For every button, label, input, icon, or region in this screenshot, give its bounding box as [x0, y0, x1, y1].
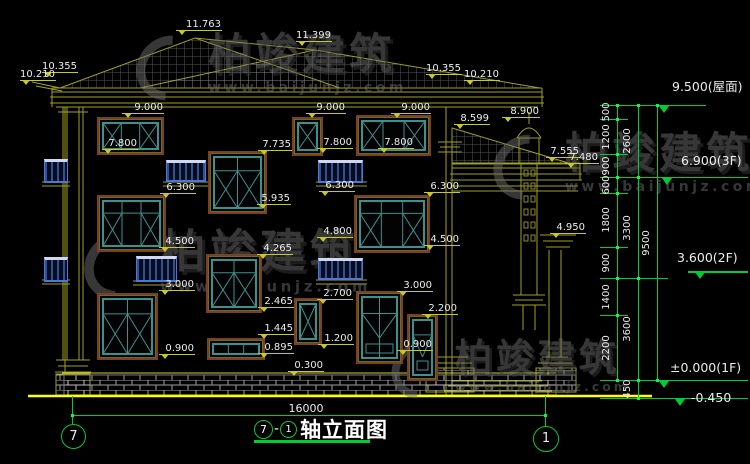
level-triangle-icon — [659, 381, 669, 388]
elevation-value: 4.950 — [556, 222, 585, 233]
elevation-value: 1.445 — [264, 323, 293, 334]
level-label: ±0.000(1F) — [670, 360, 741, 375]
balcony-railing — [44, 257, 68, 282]
balcony-railing — [44, 159, 68, 183]
elevation-value: 6.300 — [166, 182, 195, 193]
elevation-value: 3.000 — [403, 280, 432, 291]
dim-chain-value: 1800 — [601, 198, 613, 242]
elevation-value: 8.599 — [460, 113, 489, 124]
elevation-value: 7.800 — [108, 138, 137, 149]
level-label: -0.450 — [691, 390, 731, 405]
elevation-marker: 10.210 — [20, 68, 56, 81]
dim-tick — [616, 118, 619, 121]
level-triangle-icon — [675, 399, 685, 406]
elevation-value: 10.210 — [20, 69, 55, 80]
elevation-triangle-icon — [466, 80, 474, 85]
balcony-railing — [318, 258, 363, 280]
dim-tick — [637, 397, 640, 400]
elevation-marker: 0.895 — [258, 341, 294, 354]
elevation-marker: 4.800 — [317, 225, 353, 238]
elevation-triangle-icon — [548, 157, 556, 162]
dim-tick — [637, 104, 640, 107]
elevation-triangle-icon — [428, 74, 436, 79]
elevation-triangle-icon — [380, 148, 388, 153]
elevation-value: 7.480 — [569, 152, 598, 163]
elevation-triangle-icon — [260, 307, 268, 312]
elevation-marker: 4.950 — [550, 221, 586, 234]
balcony-railing — [166, 160, 206, 182]
dim-chain-line — [617, 105, 618, 380]
dim-tick — [71, 414, 74, 417]
dim-tick — [616, 246, 619, 249]
dim-tick — [616, 379, 619, 382]
elevation-marker: 7.800 — [378, 136, 414, 149]
dim-chain-line — [638, 105, 639, 398]
axis-line-1 — [545, 396, 546, 427]
elevation-value: 0.900 — [165, 343, 194, 354]
elevation-marker: 10.355 — [426, 62, 462, 75]
axis-bubble-7: 7 — [61, 424, 86, 449]
elevation-value: 5.935 — [261, 193, 290, 204]
elevation-value: 4.800 — [323, 226, 352, 237]
elevation-marker: 5.935 — [257, 192, 291, 205]
elevation-triangle-icon — [178, 30, 186, 35]
dim-chain-value: 9500 — [641, 221, 653, 265]
elevation-triangle-icon — [161, 247, 169, 252]
elevation-marker: 4.500 — [159, 235, 195, 248]
elevation-triangle-icon — [290, 371, 298, 376]
elevation-marker: 2.700 — [317, 287, 353, 300]
elevation-marker: 9.000 — [391, 101, 431, 114]
title-separator: - — [274, 421, 279, 437]
dim-tick — [616, 192, 619, 195]
elevation-marker: 8.599 — [454, 112, 490, 125]
elevation-marker: 7.480 — [565, 151, 599, 164]
elevation-triangle-icon — [320, 344, 328, 349]
elevation-value: 8.900 — [510, 106, 539, 117]
elevation-triangle-icon — [399, 350, 407, 355]
axis-bubble-1: 1 — [533, 426, 559, 452]
elevation-marker: 4.265 — [257, 242, 293, 255]
elevation-triangle-icon — [567, 163, 575, 168]
elevation-value: 11.399 — [296, 30, 331, 41]
elevation-triangle-icon — [399, 291, 407, 296]
elevation-triangle-icon — [426, 245, 434, 250]
elevation-triangle-icon — [260, 334, 268, 339]
watermark: 柏竣建筑www.baijunjz.com — [138, 34, 407, 102]
elevation-value: 0.895 — [264, 342, 293, 353]
dim-chain-value: 3600 — [622, 307, 634, 351]
window — [206, 254, 262, 313]
elevation-value: 10.210 — [464, 69, 499, 80]
watermark-url: www.baijunjz.com — [455, 380, 630, 394]
elevation-value: 0.300 — [294, 360, 323, 371]
elevation-value: 9.000 — [401, 102, 430, 113]
elevation-value: 2.200 — [428, 303, 457, 314]
elevation-triangle-icon — [161, 354, 169, 359]
elevation-marker: 0.900 — [397, 338, 433, 351]
elevation-marker: 0.900 — [159, 342, 195, 355]
elevation-triangle-icon — [393, 113, 401, 118]
dim-tick — [637, 277, 640, 280]
elevation-marker: 7.800 — [317, 136, 353, 149]
elevation-drawing-canvas: 16000 7 - 1 轴立面图 7 1 柏竣建筑www.baijunjz.co… — [0, 0, 750, 464]
dim-chain-value: 2200 — [601, 326, 613, 370]
dim-tick — [616, 314, 619, 317]
window — [97, 195, 166, 252]
elevation-triangle-icon — [504, 117, 512, 122]
elevation-value: 4.265 — [263, 243, 292, 254]
dim-chain-value: 450 — [622, 367, 634, 411]
elevation-value: 2.465 — [264, 296, 293, 307]
elevation-value: 9.000 — [134, 102, 163, 113]
elevation-triangle-icon — [162, 193, 170, 198]
dim-tick — [544, 414, 547, 417]
elevation-value: 10.355 — [426, 63, 461, 74]
dim-chain-line — [657, 105, 658, 380]
elevation-value: 7.735 — [262, 139, 291, 150]
elevation-triangle-icon — [104, 149, 112, 154]
dim-chain-value: 1400 — [601, 275, 613, 319]
elevation-marker: 1.200 — [318, 332, 354, 345]
elevation-triangle-icon — [259, 204, 267, 209]
elevation-value: 1.200 — [324, 333, 353, 344]
elevation-value: 6.300 — [430, 181, 459, 192]
title-underline — [254, 440, 370, 443]
elevation-triangle-icon — [308, 113, 316, 118]
window — [354, 195, 430, 253]
elevation-triangle-icon — [298, 41, 306, 46]
elevation-marker: 9.000 — [122, 101, 164, 114]
level-label: 9.500(屋面) — [672, 76, 743, 95]
elevation-value: 4.500 — [430, 234, 459, 245]
elevation-triangle-icon — [319, 299, 327, 304]
window — [97, 293, 158, 360]
elevation-value: 7.800 — [323, 137, 352, 148]
level-label: 6.900(3F) — [681, 153, 742, 168]
level-triangle-icon — [659, 106, 669, 113]
level-triangle-icon — [662, 178, 672, 185]
elevation-value: 2.700 — [323, 288, 352, 299]
dim-chain-value: 3300 — [622, 206, 634, 250]
elevation-triangle-icon — [319, 148, 327, 153]
axis-line-7 — [72, 396, 73, 424]
elevation-triangle-icon — [321, 191, 329, 196]
elevation-triangle-icon — [22, 80, 30, 85]
elevation-marker: 2.200 — [422, 302, 458, 315]
elevation-marker: 2.465 — [258, 295, 294, 308]
elevation-triangle-icon — [161, 290, 169, 295]
elevation-marker: 7.800 — [102, 137, 138, 150]
elevation-marker: 6.300 — [160, 181, 196, 194]
elevation-value: 0.900 — [403, 339, 432, 350]
door — [356, 291, 403, 364]
elevation-triangle-icon — [260, 150, 268, 155]
elevation-triangle-icon — [456, 124, 464, 129]
elevation-triangle-icon — [259, 254, 267, 259]
elevation-marker: 7.735 — [258, 138, 292, 151]
elevation-marker: 9.000 — [306, 101, 346, 114]
elevation-value: 6.300 — [325, 180, 354, 191]
elevation-marker: 11.763 — [176, 18, 222, 31]
dim-tick — [616, 277, 619, 280]
dim-tick — [637, 176, 640, 179]
elevation-marker: 8.900 — [502, 105, 540, 118]
elevation-marker: 6.300 — [319, 179, 355, 192]
elevation-marker: 4.500 — [424, 233, 460, 246]
elevation-triangle-icon — [424, 314, 432, 319]
title-axis-bubble-start: 7 — [254, 420, 273, 439]
elevation-marker: 6.300 — [424, 180, 460, 193]
elevation-marker: 1.445 — [258, 322, 294, 335]
elevation-value: 7.800 — [384, 137, 413, 148]
dim-tick — [637, 379, 640, 382]
dim-tick — [616, 153, 619, 156]
elevation-marker: 10.210 — [464, 68, 500, 81]
elevation-marker: 11.399 — [296, 29, 332, 42]
elevation-triangle-icon — [552, 233, 560, 238]
elevation-value: 4.500 — [165, 236, 194, 247]
elevation-triangle-icon — [260, 353, 268, 358]
elevation-value: 3.000 — [165, 279, 194, 290]
elevation-marker: 3.000 — [159, 278, 195, 291]
elevation-triangle-icon — [426, 192, 434, 197]
elevation-triangle-icon — [124, 113, 132, 118]
level-triangle-icon — [695, 272, 705, 279]
dim-chain-value: 2600 — [622, 119, 634, 163]
elevation-triangle-icon — [319, 237, 327, 242]
dim-tick — [616, 176, 619, 179]
dim-tick — [616, 104, 619, 107]
window — [207, 338, 265, 360]
elevation-value: 11.763 — [186, 19, 221, 30]
elevation-value: 9.000 — [316, 102, 345, 113]
watermark-url: www.baijunjz.com — [208, 80, 407, 96]
level-label: 3.600(2F) — [677, 250, 738, 265]
dim-level-line — [600, 177, 748, 178]
title-axis-bubble-end: 1 — [280, 421, 297, 438]
elevation-marker: 3.000 — [397, 279, 433, 292]
elevation-marker: 0.300 — [288, 359, 324, 372]
